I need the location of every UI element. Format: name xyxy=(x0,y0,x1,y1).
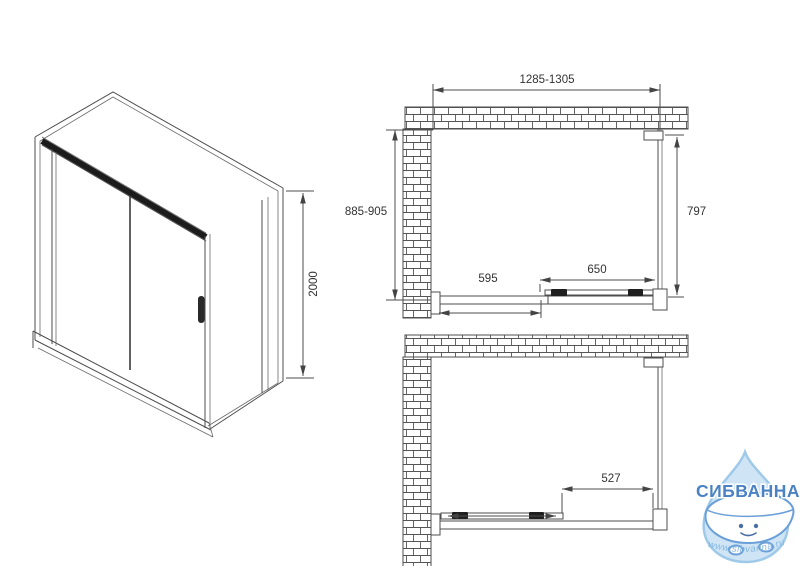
plan-door-dimension: 650 xyxy=(540,264,655,292)
dim-height-label: 2000 xyxy=(308,271,320,297)
isometric-view: 2000 xyxy=(33,92,320,437)
door-roller xyxy=(551,289,567,296)
corner-profile-right xyxy=(653,289,667,310)
wall-brick-top xyxy=(405,107,688,129)
dim-side-panel-label: 797 xyxy=(687,206,706,218)
iso-side-panel xyxy=(262,197,268,393)
plan-side-dimension: 797 xyxy=(665,135,706,297)
fixed-panel-track xyxy=(440,521,655,529)
brand-logo-text: СИБВАННА xyxy=(696,481,800,501)
door-roller xyxy=(628,289,643,296)
wall-profile-left xyxy=(431,292,440,314)
wall-profile-top-right xyxy=(644,131,663,140)
dim-width-label: 1285-1305 xyxy=(520,74,575,86)
wall-profile-top-right xyxy=(644,358,663,367)
iso-frame-outline xyxy=(35,92,283,429)
iso-shower-tray xyxy=(33,331,213,437)
brand-logo: СИБВАННА www.sibvanna.ru xyxy=(696,452,800,562)
plan-front-assembly-open xyxy=(431,509,667,535)
iso-top-rail xyxy=(42,141,206,237)
shower-enclosure-drawing: 2000 1285-1305 885-905 xyxy=(0,0,800,566)
plan-opening-dimension: 527 xyxy=(562,473,653,513)
plan-view-open: 527 xyxy=(403,335,688,566)
plan-front-assembly-closed xyxy=(431,289,667,314)
wall-profile-left xyxy=(431,514,440,535)
iso-height-dimension: 2000 xyxy=(286,191,320,378)
dim-depth-label: 885-905 xyxy=(345,206,387,218)
wall-brick-left xyxy=(403,129,431,318)
dim-door-label: 650 xyxy=(587,264,606,276)
plan-side-panel xyxy=(644,129,663,302)
wall-brick-left xyxy=(403,357,431,566)
iso-door-handle xyxy=(198,296,205,323)
wall-brick-top xyxy=(405,335,688,357)
dim-opening-label: 527 xyxy=(601,473,620,485)
plan-view-closed: 1285-1305 885-905 797 xyxy=(345,74,706,318)
dim-fixed-panel-label: 595 xyxy=(478,273,497,285)
corner-profile-right xyxy=(653,509,667,530)
technical-drawing-page: 2000 1285-1305 885-905 xyxy=(0,0,800,566)
